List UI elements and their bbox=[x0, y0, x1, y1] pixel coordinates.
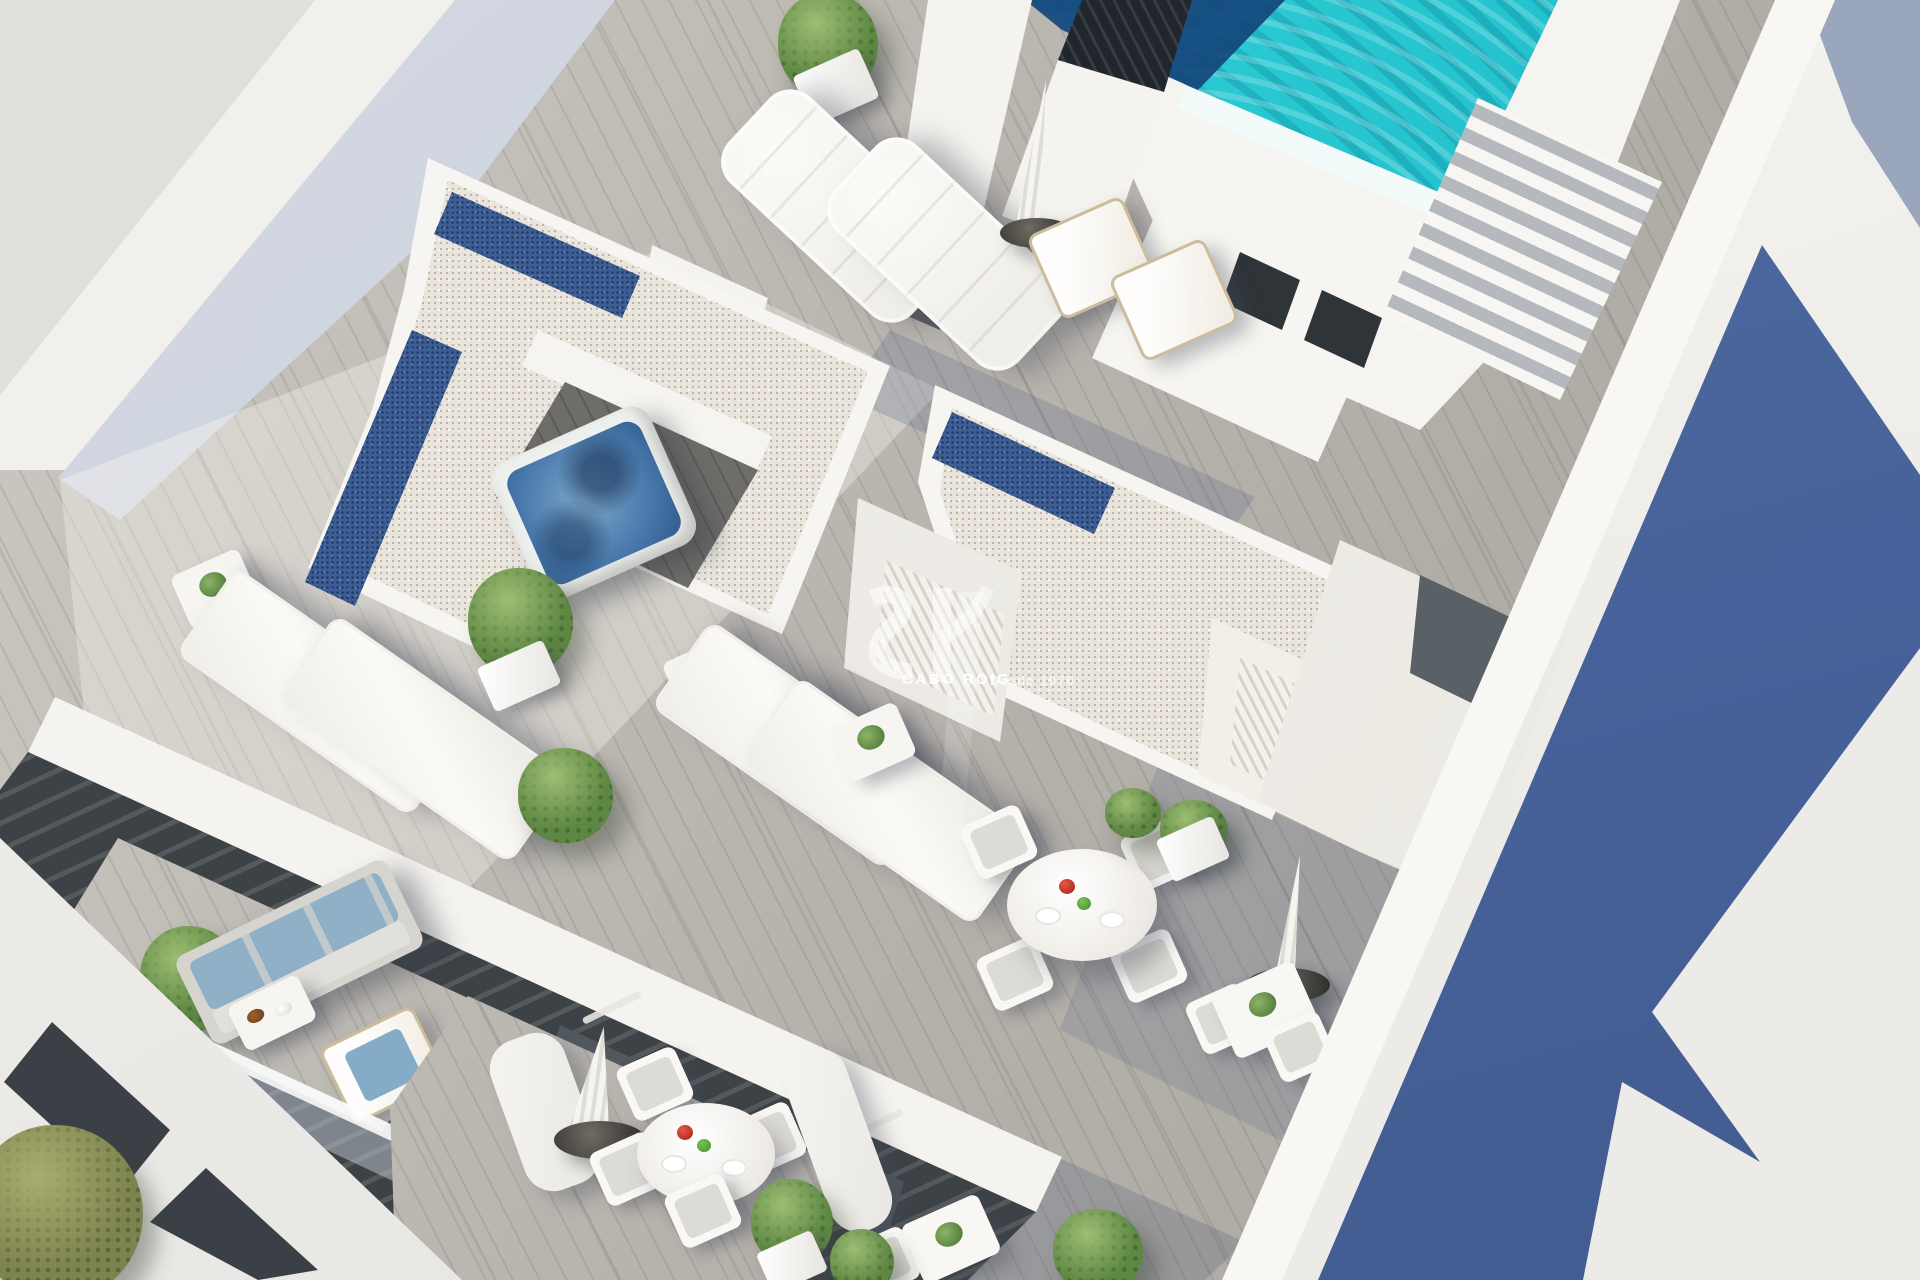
plate bbox=[661, 1155, 687, 1173]
bowl bbox=[273, 999, 295, 1019]
red-fruit bbox=[677, 1125, 693, 1140]
green-fruit bbox=[1077, 897, 1091, 910]
table-plant bbox=[853, 721, 888, 754]
plate bbox=[721, 1159, 747, 1177]
shrub bbox=[1105, 788, 1161, 838]
table-plant bbox=[931, 1218, 966, 1251]
shrub bbox=[518, 748, 613, 843]
plate bbox=[1099, 911, 1125, 929]
render-stage: CABO ROIG Desde 1970 bbox=[0, 0, 1920, 1280]
green-fruit bbox=[697, 1139, 711, 1152]
bowl bbox=[245, 1006, 267, 1026]
round-dining-table bbox=[1007, 849, 1157, 961]
table-plant bbox=[1245, 988, 1280, 1021]
red-fruit bbox=[1059, 879, 1075, 894]
plate bbox=[1035, 907, 1061, 925]
